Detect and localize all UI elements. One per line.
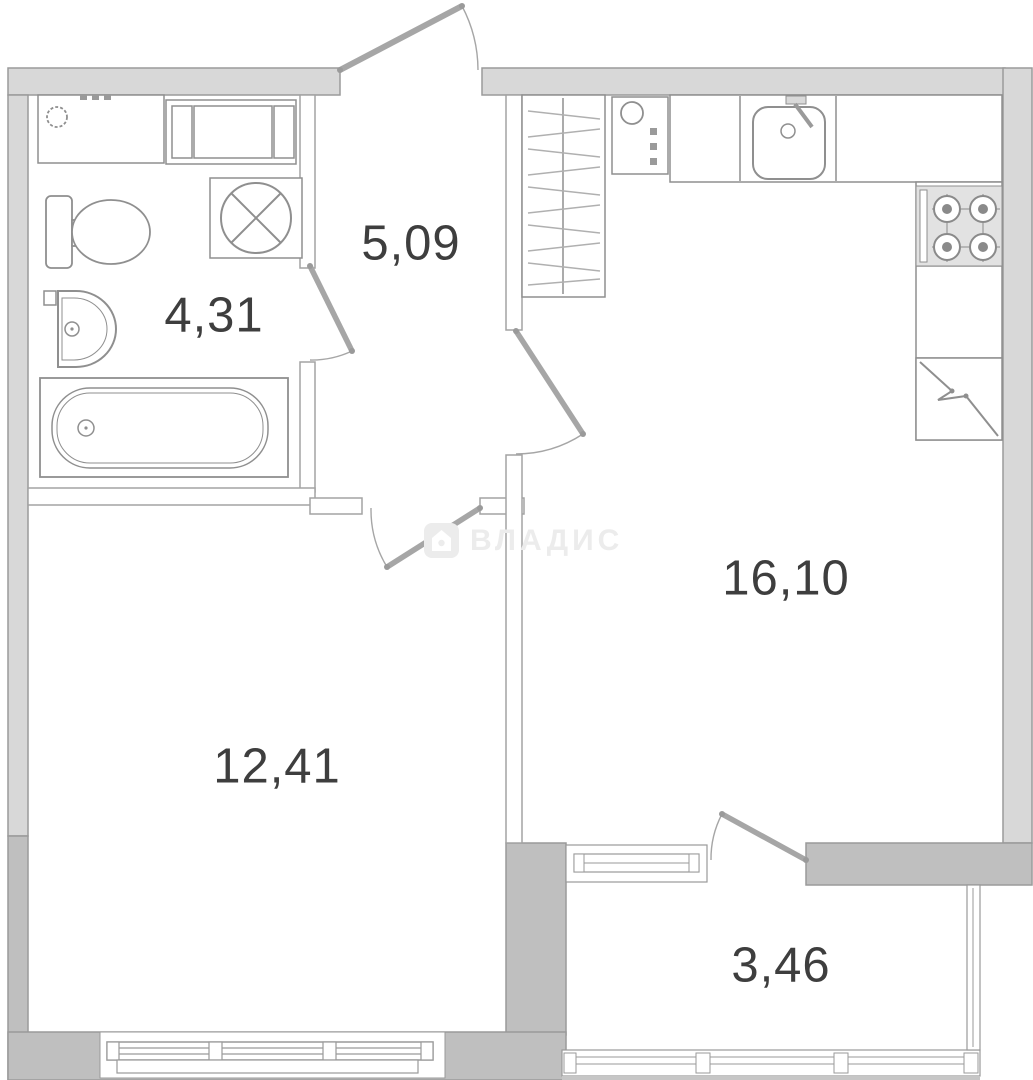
balcony-window	[566, 845, 707, 882]
wall-top-left	[8, 68, 340, 95]
wall-bathroom-bottom	[28, 488, 315, 505]
watermark: ВЛАДИС	[423, 522, 623, 559]
kitchen-fixtures	[522, 95, 1002, 440]
washing-machine	[166, 100, 296, 164]
wall-bathroom-right-lower	[300, 362, 315, 492]
house-badge-icon	[423, 522, 460, 559]
balcony-glazing	[562, 1050, 980, 1080]
bathroom-fixtures	[38, 95, 302, 477]
area-label-hallway: 5,09	[361, 220, 460, 269]
stove	[916, 186, 1002, 266]
watermark-text: ВЛАДИС	[470, 526, 623, 556]
wall-hall-room-left	[310, 498, 362, 514]
wall-left-upper	[8, 95, 28, 836]
area-label-bathroom: 4,31	[164, 292, 263, 341]
balcony-side-glazing	[967, 885, 980, 1050]
toilet	[46, 196, 150, 268]
wall-hall-kitchen-upper	[506, 95, 522, 330]
bathroom-counter	[38, 95, 164, 163]
entrance-door	[337, 3, 478, 73]
room-window	[100, 1032, 445, 1078]
wall-room-kitchen	[506, 455, 522, 843]
wall-top-right	[482, 68, 1005, 95]
bathtub	[40, 378, 288, 477]
wall-right	[1003, 68, 1032, 843]
kitchen-sink	[753, 96, 825, 179]
area-label-kitchen-living: 16,10	[722, 555, 850, 604]
wall-kitchen-balcony	[506, 843, 566, 1035]
balcony-door	[711, 811, 809, 863]
ventilation-fan-icon	[210, 178, 302, 258]
bathroom-door	[307, 263, 355, 360]
area-label-room: 12,41	[213, 743, 341, 792]
wash-basin	[44, 291, 116, 367]
water-heater	[612, 97, 668, 174]
wardrobe	[522, 95, 605, 297]
floor-plan: 5,09 4,31 16,10 12,41 3,46 ВЛАДИС	[0, 0, 1033, 1080]
kitchen-door	[513, 328, 586, 454]
refrigerator	[916, 358, 1002, 440]
wall-balcony-top	[806, 843, 1032, 885]
area-label-balcony: 3,46	[731, 942, 830, 991]
